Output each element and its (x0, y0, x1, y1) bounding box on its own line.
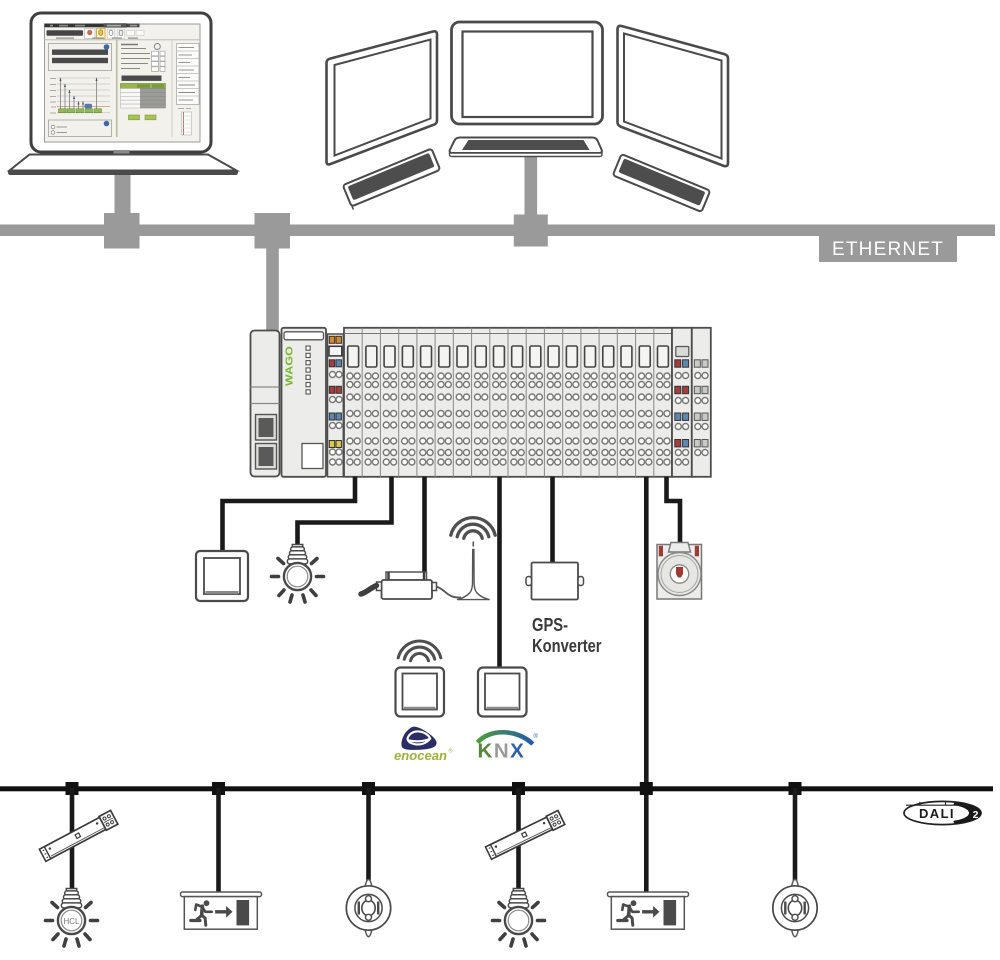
svg-text:DALI: DALI (919, 806, 955, 821)
svg-text:®: ® (449, 748, 453, 755)
svg-text:ETHERNET: ETHERNET (832, 239, 944, 260)
svg-text:GPS-: GPS- (532, 615, 568, 635)
svg-text:WAGO: WAGO (284, 346, 296, 386)
svg-text:enocean: enocean (394, 748, 447, 763)
svg-text:HCL: HCL (63, 917, 80, 926)
svg-text:2: 2 (973, 809, 979, 821)
svg-text:®: ® (534, 733, 539, 740)
svg-text:KNX: KNX (478, 740, 526, 763)
svg-text:Konverter: Konverter (532, 636, 602, 656)
